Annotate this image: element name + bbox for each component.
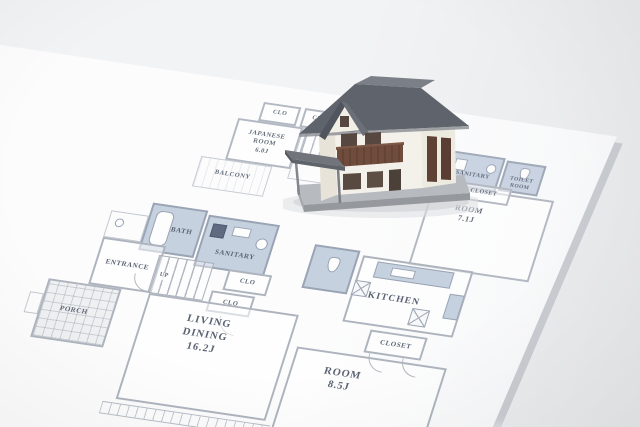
lower-window-right bbox=[367, 171, 383, 188]
room-kitchen: KITCHEN bbox=[342, 255, 473, 337]
room-label-clo-a-1f: CLO bbox=[238, 278, 256, 288]
room-living-dining: LIVING DINING 16.2J bbox=[116, 293, 299, 421]
room-label-porch: PORCH bbox=[59, 304, 89, 317]
side-shutter-left bbox=[427, 136, 437, 182]
room-label-closet-1f: CLOSET bbox=[379, 338, 413, 351]
front-door bbox=[389, 169, 401, 191]
basin-fixture-2f bbox=[485, 164, 498, 175]
room-label-balcony: BALCONY bbox=[213, 169, 251, 182]
room-porch: PORCH bbox=[30, 278, 121, 347]
sink-fixture-1f bbox=[254, 238, 269, 251]
side-shutter-right bbox=[441, 138, 451, 181]
upper-window-right bbox=[365, 132, 381, 145]
washer-fixture-1f bbox=[209, 223, 227, 238]
room-label-bath: BATH bbox=[169, 226, 193, 238]
lower-window-left bbox=[343, 173, 361, 190]
room-label-kitchen: KITCHEN bbox=[366, 290, 422, 309]
room-label-sanitary-1f: SANITARY bbox=[214, 248, 256, 262]
room-label-up: UP bbox=[156, 272, 171, 281]
room-label-entrance: ENTRANCE bbox=[104, 258, 150, 273]
room-label-japanese: JAPANESE ROOM 6.0J bbox=[242, 129, 286, 158]
house-model bbox=[283, 54, 478, 219]
gable-window bbox=[340, 116, 349, 127]
toilet-fixture-1f bbox=[325, 256, 342, 273]
basin-fixture-1f bbox=[114, 218, 126, 228]
pantry-space-box bbox=[407, 308, 430, 328]
upper-window-left bbox=[341, 133, 357, 147]
room-toilet-1f bbox=[301, 244, 360, 294]
photo-scene: CLO CLO JAPANESE ROOM 6.0J BALCONY SANIT… bbox=[0, 0, 640, 427]
kitchen-appliance-fixture bbox=[442, 294, 465, 321]
room-label-living-dining: LIVING DINING 16.2J bbox=[158, 310, 252, 361]
counter-fixture-1f bbox=[231, 226, 252, 238]
carport-post-left bbox=[296, 162, 299, 195]
room-label-8-5j: ROOM 8.5J bbox=[318, 364, 363, 395]
